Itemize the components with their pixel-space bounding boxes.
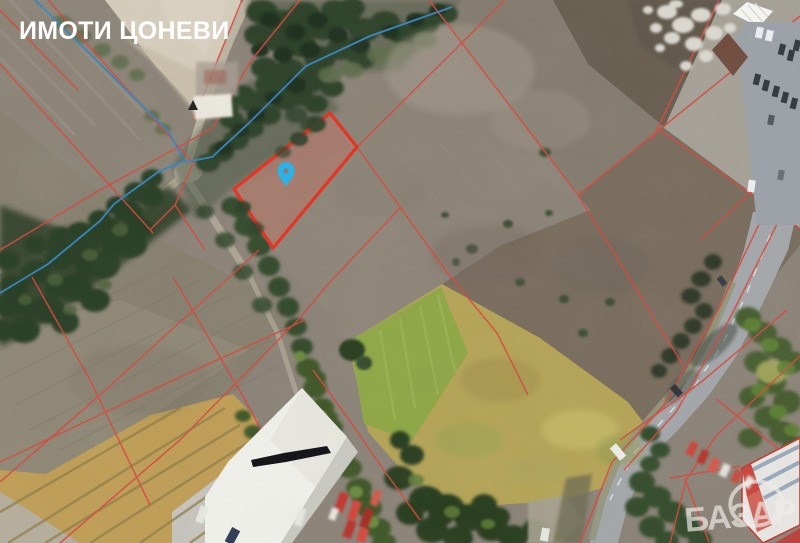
svg-text:ИМОТИ ЦОНЕВИ: ИМОТИ ЦОНЕВИ [19, 17, 230, 45]
